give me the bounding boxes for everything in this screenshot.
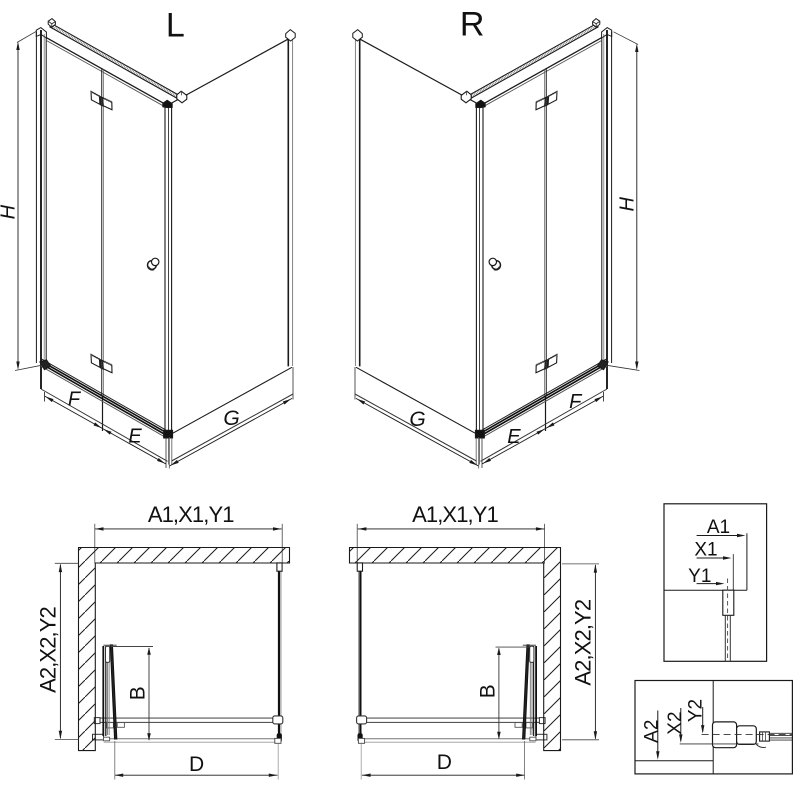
svg-text:B: B (477, 684, 500, 698)
svg-text:D: D (189, 753, 204, 776)
svg-text:A1,X1,Y1: A1,X1,Y1 (412, 502, 498, 527)
svg-text:R: R (460, 6, 485, 44)
svg-text:Y2: Y2 (686, 699, 707, 722)
svg-text:H: H (0, 204, 20, 219)
svg-text:L: L (166, 7, 185, 45)
svg-text:D: D (437, 751, 452, 774)
svg-text:F: F (68, 388, 82, 410)
svg-text:A2: A2 (641, 720, 662, 743)
svg-text:X2: X2 (665, 711, 686, 734)
svg-text:G: G (223, 407, 239, 430)
svg-text:E: E (128, 425, 142, 447)
svg-text:A2,X2,Y2: A2,X2,Y2 (36, 606, 61, 692)
svg-text:A2,X2,Y2: A2,X2,Y2 (571, 599, 596, 685)
svg-text:X1: X1 (694, 540, 717, 561)
svg-text:F: F (569, 391, 583, 413)
svg-text:A1: A1 (707, 517, 730, 538)
svg-text:Y1: Y1 (688, 566, 711, 587)
svg-text:A1,X1,Y1: A1,X1,Y1 (148, 502, 234, 527)
svg-text:E: E (507, 426, 521, 448)
svg-text:G: G (409, 408, 425, 431)
svg-text:H: H (616, 197, 638, 212)
svg-text:B: B (127, 686, 150, 700)
